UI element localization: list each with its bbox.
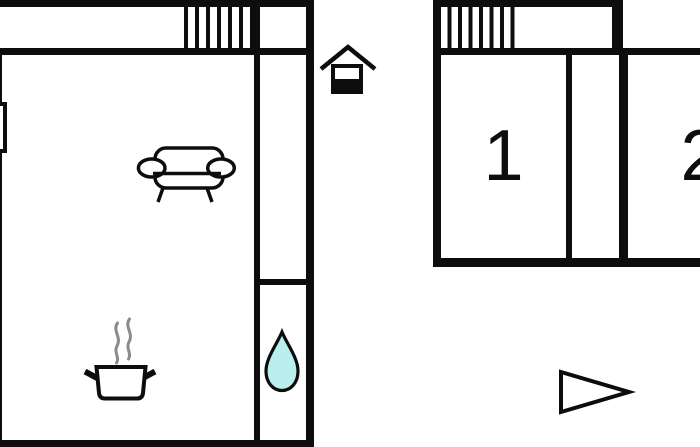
sofa-icon bbox=[137, 143, 237, 207]
house-ground-floor-icon bbox=[317, 42, 379, 98]
triangle-right-icon bbox=[556, 367, 634, 417]
room-1-label: 1 bbox=[441, 55, 566, 257]
right-unit-left-wall bbox=[433, 0, 441, 267]
right-unit-step-wall bbox=[612, 0, 623, 53]
room-2-label: 2 bbox=[627, 55, 700, 257]
cooking-pot-steam-icon bbox=[80, 315, 160, 403]
bathroom-divider-wall bbox=[254, 279, 310, 285]
left-unit-upper-divider-wall bbox=[0, 48, 314, 55]
stairs-icon bbox=[441, 7, 517, 48]
left-unit-right-wall bbox=[306, 0, 314, 447]
right-unit-top-wall bbox=[433, 0, 623, 7]
room1-right-wall bbox=[566, 48, 572, 267]
corridor-left-wall bbox=[254, 7, 260, 440]
right-unit-bottom-wall bbox=[433, 258, 700, 267]
left-unit-top-wall bbox=[0, 0, 314, 7]
window-opening-icon bbox=[0, 102, 7, 153]
left-unit-bottom-wall bbox=[0, 440, 314, 447]
water-drop-icon bbox=[261, 328, 303, 396]
floor-plan: 1 2 bbox=[0, 0, 700, 447]
stairs-icon bbox=[177, 7, 254, 48]
